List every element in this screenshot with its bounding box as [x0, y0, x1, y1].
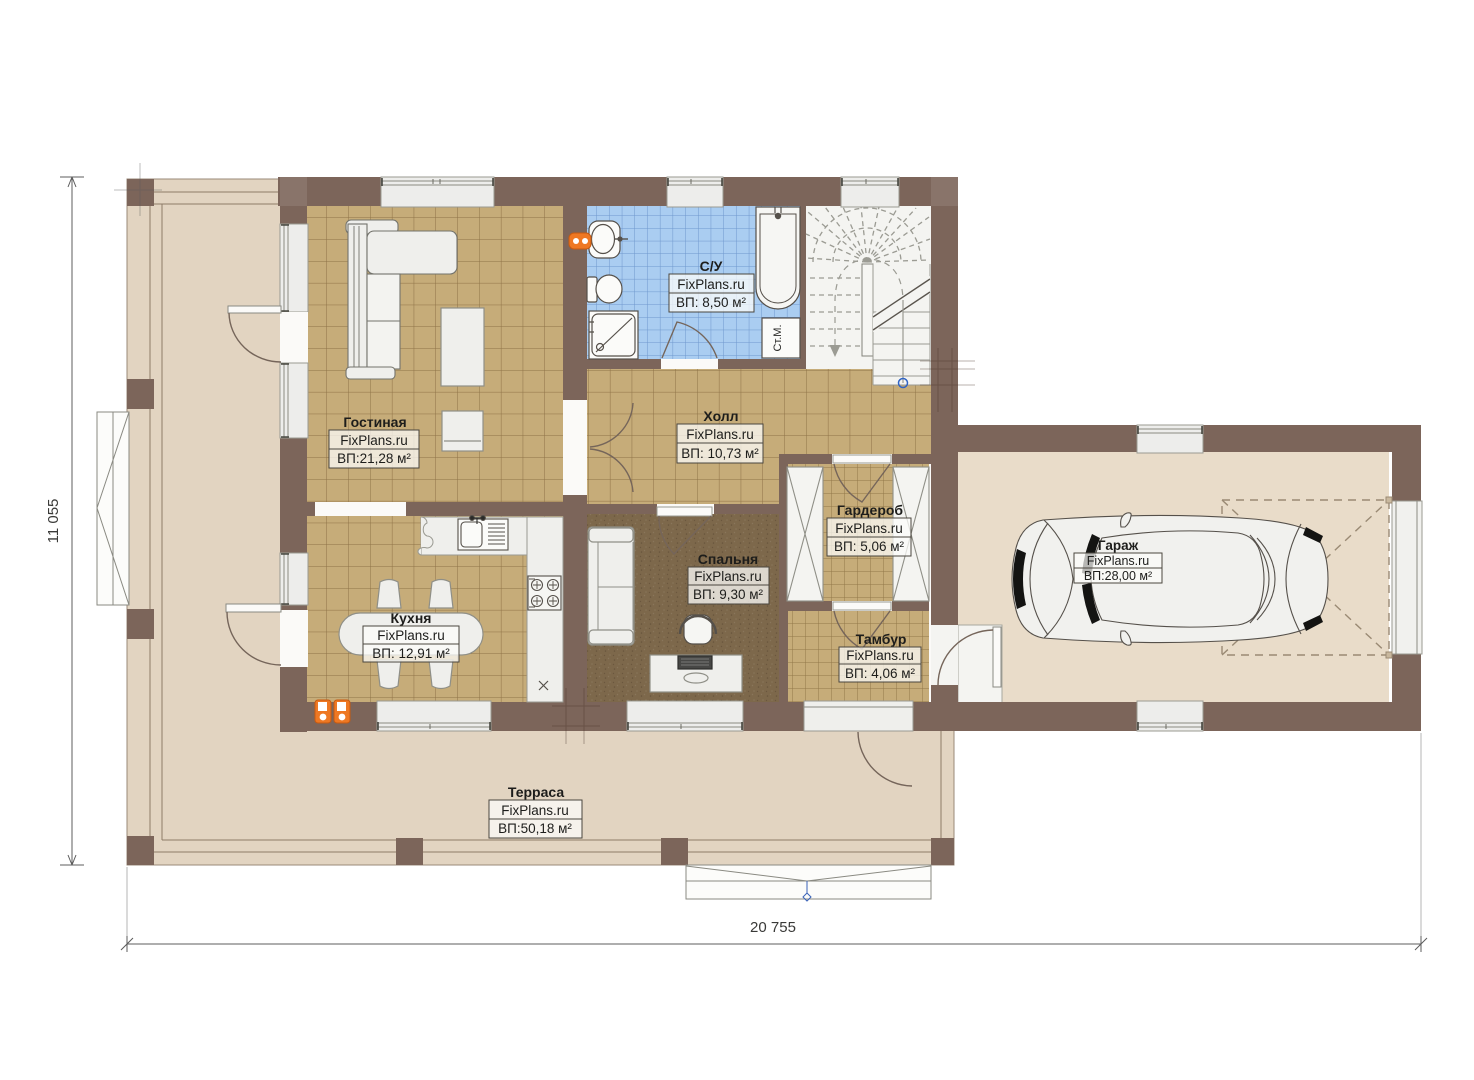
svg-text:Тамбур: Тамбур — [856, 631, 907, 647]
svg-text:Спальня: Спальня — [698, 551, 758, 567]
svg-text:Кухня: Кухня — [391, 610, 432, 626]
svg-text:FixPlans.ru: FixPlans.ru — [846, 648, 914, 663]
svg-text:ВП: 9,30 м²: ВП: 9,30 м² — [693, 587, 764, 602]
svg-text:Гостиная: Гостиная — [343, 414, 406, 430]
svg-text:ВП: 12,91 м²: ВП: 12,91 м² — [372, 646, 450, 661]
svg-text:ВП: 8,50 м²: ВП: 8,50 м² — [676, 295, 747, 310]
svg-text:Ст.М.: Ст.М. — [772, 324, 784, 351]
svg-text:ВП:50,18 м²: ВП:50,18 м² — [498, 821, 572, 836]
svg-text:FixPlans.ru: FixPlans.ru — [377, 628, 445, 643]
svg-text:ВП: 5,06 м²: ВП: 5,06 м² — [834, 539, 905, 554]
svg-text:FixPlans.ru: FixPlans.ru — [835, 521, 903, 536]
svg-text:FixPlans.ru: FixPlans.ru — [694, 569, 762, 584]
svg-text:Холл: Холл — [703, 408, 738, 424]
svg-text:FixPlans.ru: FixPlans.ru — [686, 427, 754, 442]
svg-text:Гардероб: Гардероб — [837, 502, 904, 518]
svg-text:Терраса: Терраса — [508, 784, 564, 800]
svg-text:20 755: 20 755 — [750, 919, 796, 936]
svg-text:ВП:21,28 м²: ВП:21,28 м² — [337, 451, 411, 466]
svg-text:FixPlans.ru: FixPlans.ru — [1087, 554, 1150, 568]
svg-text:ВП:28,00 м²: ВП:28,00 м² — [1084, 569, 1152, 583]
svg-text:FixPlans.ru: FixPlans.ru — [340, 433, 408, 448]
svg-text:ВП: 10,73 м²: ВП: 10,73 м² — [681, 446, 759, 461]
svg-text:FixPlans.ru: FixPlans.ru — [501, 803, 569, 818]
svg-text:ВП: 4,06 м²: ВП: 4,06 м² — [845, 666, 916, 681]
svg-text:Гараж: Гараж — [1098, 538, 1139, 553]
svg-text:11 055: 11 055 — [45, 499, 62, 544]
svg-text:FixPlans.ru: FixPlans.ru — [677, 277, 745, 292]
svg-text:С/У: С/У — [700, 258, 723, 274]
